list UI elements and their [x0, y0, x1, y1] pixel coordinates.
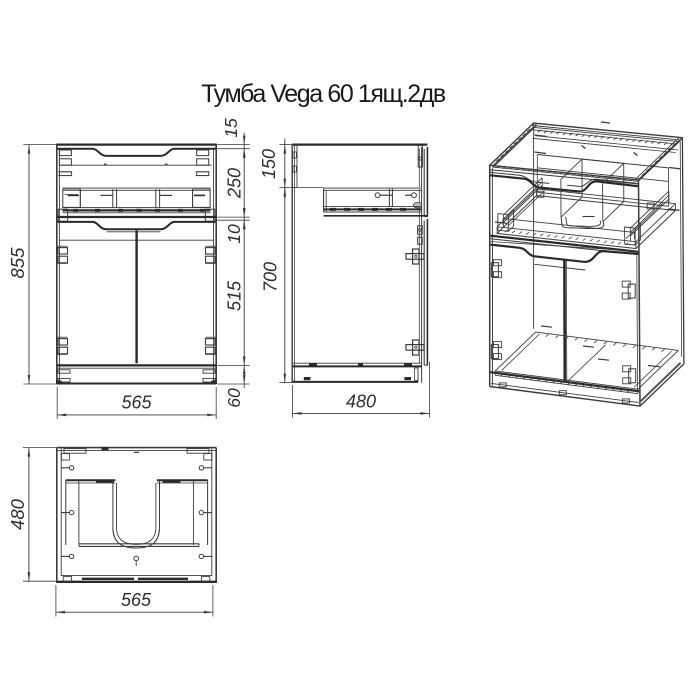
svg-text:250: 250	[225, 168, 245, 199]
svg-text:Тумба Vega 60 1ящ.2дв: Тумба Vega 60 1ящ.2дв	[201, 80, 446, 108]
svg-text:700: 700	[261, 262, 281, 292]
svg-text:565: 565	[121, 393, 152, 413]
svg-text:60: 60	[224, 388, 244, 408]
svg-text:855: 855	[7, 247, 28, 279]
svg-text:15: 15	[221, 118, 241, 138]
svg-text:150: 150	[259, 149, 279, 179]
svg-text:565: 565	[121, 590, 152, 610]
svg-text:10: 10	[224, 224, 244, 244]
svg-text:515: 515	[225, 280, 245, 311]
svg-text:480: 480	[7, 498, 28, 530]
svg-text:480: 480	[346, 392, 376, 412]
